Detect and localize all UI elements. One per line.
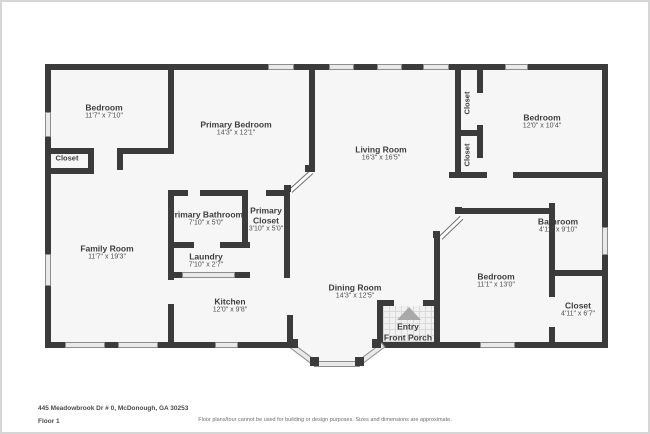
address-text: 445 Meadowbrook Dr # 0, McDonough, GA 30…	[38, 405, 188, 412]
window	[215, 342, 238, 348]
room-label-dining-room: Dining Room 14'3" x 12'5"	[329, 283, 382, 302]
wall-post	[305, 165, 312, 172]
wall	[168, 190, 174, 280]
wall	[434, 237, 440, 348]
wall	[220, 242, 250, 248]
room-dimensions: 16'3" x 16'5"	[355, 155, 406, 163]
room-name: Bedroom	[85, 103, 123, 113]
room-label-bedroom-top-right: Bedroom 12'0" x 10'4"	[523, 113, 561, 132]
room-label-bedroom-top-left: Bedroom 11'7" x 7'10"	[85, 103, 123, 122]
wall	[549, 270, 608, 276]
room-dimensions: 11'7" x 7'10"	[85, 113, 123, 121]
wall-post	[310, 357, 319, 366]
wall-post	[284, 185, 291, 192]
wall-post	[455, 207, 462, 214]
room-dimensions: 11'7" x 19'3"	[80, 254, 133, 262]
bay-window-center	[314, 361, 360, 367]
room-label-closet-lower: Closet	[463, 144, 472, 167]
room-name: Primary Closet	[241, 206, 291, 226]
room-label-primary-bedroom: Primary Bedroom 14'3" x 12'1"	[200, 120, 271, 139]
room-label-closet-upper: Closet	[463, 92, 472, 115]
wall	[200, 190, 248, 196]
room-label-family-room: Family Room 11'7" x 19'3"	[80, 244, 133, 263]
wall	[117, 148, 123, 170]
room-dimensions: 4'11" x 9'10"	[538, 227, 578, 235]
room-dimensions: 3'10" x 5'0"	[241, 226, 291, 234]
wall	[462, 208, 553, 214]
room-label-laundry: Laundry 7'10" x 2'7"	[189, 252, 224, 271]
wall	[168, 64, 174, 150]
wall	[45, 168, 94, 174]
room-dimensions: 14'3" x 12'5"	[329, 293, 382, 301]
entry-front-porch-label: Entry Front Porch	[384, 322, 432, 345]
disclaimer-text: Floor plans/tour cannot be used for buil…	[198, 417, 451, 423]
window	[480, 342, 515, 348]
wall	[477, 64, 483, 93]
window	[602, 227, 608, 255]
room-name: Closet	[463, 92, 472, 115]
room-name: Laundry	[189, 252, 224, 262]
room-label-primary-closet: Primary Closet 3'10" x 5'0"	[241, 206, 291, 235]
wall-post	[355, 357, 364, 366]
wall	[235, 272, 250, 278]
window	[505, 64, 528, 70]
wall	[549, 327, 555, 348]
wall-post	[433, 231, 440, 238]
room-label-closet-bottom-right: Closet 4'11" x 6'7"	[561, 301, 595, 320]
wall	[602, 64, 608, 348]
wall	[455, 64, 461, 178]
room-dimensions: 14'3" x 12'1"	[200, 130, 271, 138]
room-label-kitchen: Kitchen 12'0" x 9'8"	[213, 297, 248, 316]
wall-post	[372, 339, 381, 348]
window	[182, 272, 235, 278]
room-name: Primary Bedroom	[200, 120, 271, 130]
entry-label-line2: Front Porch	[384, 333, 432, 344]
room-name: Closet	[56, 154, 79, 163]
wall	[88, 148, 94, 174]
room-name: Bedroom	[477, 272, 515, 282]
window	[377, 64, 402, 70]
room-dimensions: 12'0" x 9'8"	[213, 307, 248, 315]
room-name: Closet	[463, 144, 472, 167]
room-dimensions: 4'11" x 6'7"	[561, 311, 595, 319]
window	[118, 342, 158, 348]
entry-label-line1: Entry	[384, 322, 432, 333]
room-name: Living Room	[355, 145, 406, 155]
room-name: Bedroom	[523, 113, 561, 123]
wall	[118, 148, 174, 154]
wall	[309, 64, 315, 172]
room-dimensions: 12'0" x 10'4"	[523, 123, 561, 131]
wall	[477, 125, 483, 158]
room-name: Family Room	[80, 244, 133, 254]
room-dimensions: 7'10" x 2'7"	[189, 262, 224, 270]
wall	[168, 304, 174, 348]
room-name: Primary Bathroom	[169, 210, 243, 220]
window	[329, 64, 354, 70]
room-label-living-room: Living Room 16'3" x 16'5"	[355, 145, 406, 164]
room-label-primary-bathroom: Primary Bathroom 7'10" x 5'0"	[169, 210, 243, 229]
room-name: Closet	[561, 301, 595, 311]
window	[65, 342, 105, 348]
floor-label: Floor 1	[38, 418, 60, 425]
window	[45, 254, 51, 286]
room-label-bathroom: Bathroom 4'11" x 9'10"	[538, 217, 578, 236]
room-dimensions: 11'1" x 13'0"	[477, 282, 515, 290]
wall	[513, 172, 608, 178]
window	[268, 64, 294, 70]
room-label-bedroom-bottom-right: Bedroom 11'1" x 13'0"	[477, 272, 515, 291]
room-label-closet-top-left: Closet	[56, 154, 79, 163]
room-name: Bathroom	[538, 217, 578, 227]
wall	[45, 64, 51, 348]
room-name: Kitchen	[213, 297, 248, 307]
window	[45, 112, 51, 137]
floor-plan-page: Bedroom 11'7" x 7'10" Closet Primary Bed…	[0, 0, 650, 434]
room-dimensions: 7'10" x 5'0"	[169, 220, 243, 228]
window	[423, 64, 449, 70]
wall-post	[289, 339, 298, 348]
room-name: Dining Room	[329, 283, 382, 293]
entry-arrow-icon	[397, 307, 421, 320]
